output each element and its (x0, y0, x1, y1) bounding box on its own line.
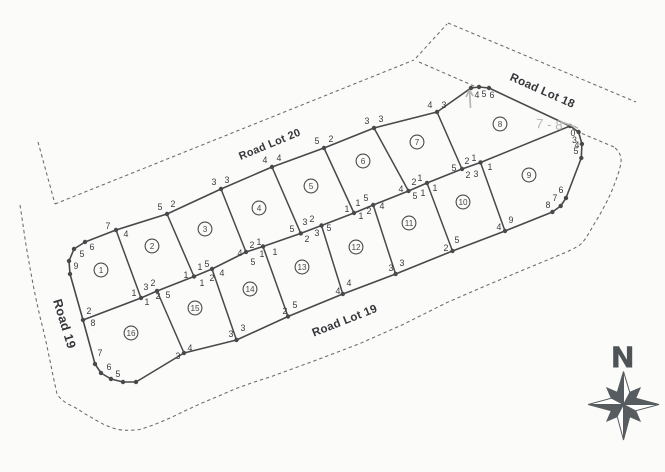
svg-text:4: 4 (336, 286, 341, 296)
svg-text:4: 4 (188, 343, 193, 353)
svg-text:2: 2 (466, 170, 471, 180)
svg-text:9: 9 (74, 261, 79, 271)
svg-text:3: 3 (225, 175, 230, 185)
svg-text:3: 3 (379, 114, 384, 124)
svg-text:13: 13 (297, 263, 307, 272)
svg-text:5: 5 (364, 193, 369, 203)
svg-text:2: 2 (444, 243, 449, 253)
svg-text:3: 3 (241, 323, 246, 333)
svg-text:3: 3 (212, 177, 217, 187)
svg-text:5: 5 (158, 202, 163, 212)
svg-text:2: 2 (305, 234, 310, 244)
svg-text:4: 4 (124, 229, 129, 239)
svg-text:4: 4 (263, 155, 268, 165)
svg-text:6: 6 (490, 90, 495, 100)
svg-text:1: 1 (198, 262, 203, 272)
svg-text:5: 5 (413, 191, 418, 201)
svg-text:5: 5 (293, 300, 298, 310)
svg-text:2: 2 (151, 278, 156, 288)
svg-text:1: 1 (356, 198, 361, 208)
svg-text:6: 6 (361, 157, 366, 166)
svg-text:12: 12 (351, 243, 361, 252)
svg-text:7: 7 (415, 138, 420, 147)
svg-text:5: 5 (166, 290, 171, 300)
svg-text:3: 3 (389, 263, 394, 273)
svg-text:9: 9 (527, 171, 532, 180)
svg-text:14: 14 (245, 285, 255, 294)
svg-text:4: 4 (277, 153, 282, 163)
svg-text:5: 5 (309, 182, 314, 191)
svg-text:2: 2 (87, 306, 92, 316)
svg-text:1: 1 (200, 278, 205, 288)
svg-text:3: 3 (315, 228, 320, 238)
svg-text:2: 2 (412, 177, 417, 187)
svg-text:5: 5 (327, 223, 332, 233)
svg-text:5: 5 (116, 369, 121, 379)
svg-text:1: 1 (99, 266, 104, 275)
svg-text:7 - 8: 7 - 8 (535, 116, 563, 133)
svg-text:1: 1 (433, 183, 438, 193)
svg-text:11: 11 (405, 219, 414, 228)
svg-text:8: 8 (91, 318, 96, 328)
svg-text:1: 1 (472, 153, 477, 163)
svg-text:4: 4 (428, 100, 433, 110)
svg-text:8: 8 (498, 120, 503, 129)
svg-text:4: 4 (257, 204, 262, 213)
svg-text:4: 4 (347, 278, 352, 288)
svg-text:5: 5 (290, 224, 295, 234)
svg-text:1: 1 (418, 173, 423, 183)
svg-text:1: 1 (260, 249, 265, 259)
svg-text:5: 5 (80, 249, 85, 259)
svg-text:4: 4 (399, 184, 404, 194)
svg-text:3: 3 (144, 282, 149, 292)
svg-text:4: 4 (497, 222, 502, 232)
svg-text:1: 1 (421, 188, 426, 198)
svg-text:1: 1 (273, 247, 278, 257)
svg-text:7: 7 (553, 193, 558, 203)
svg-text:7: 7 (98, 348, 103, 358)
svg-text:2: 2 (329, 134, 334, 144)
svg-text:1: 1 (184, 270, 189, 280)
svg-text:7: 7 (106, 221, 111, 231)
svg-text:10: 10 (458, 198, 468, 207)
svg-text:1: 1 (257, 237, 262, 247)
svg-text:3: 3 (365, 116, 370, 126)
svg-text:3: 3 (474, 169, 479, 179)
svg-text:5: 5 (455, 235, 460, 245)
svg-text:3: 3 (442, 100, 447, 110)
svg-text:4: 4 (475, 90, 480, 100)
svg-text:5: 5 (205, 259, 210, 269)
svg-text:1: 1 (132, 288, 137, 298)
svg-text:4: 4 (220, 268, 225, 278)
svg-text:6: 6 (559, 185, 564, 195)
svg-text:5: 5 (482, 89, 487, 99)
svg-text:3: 3 (303, 217, 308, 227)
svg-text:3: 3 (203, 225, 208, 234)
svg-text:1: 1 (145, 297, 150, 307)
svg-text:4: 4 (238, 248, 243, 258)
svg-text:16: 16 (126, 329, 136, 338)
svg-text:2: 2 (367, 206, 372, 216)
svg-text:2: 2 (310, 214, 315, 224)
svg-text:5: 5 (574, 146, 579, 156)
svg-text:6: 6 (90, 242, 95, 252)
svg-text:4: 4 (380, 201, 385, 211)
svg-text:15: 15 (190, 304, 200, 313)
svg-text:1: 1 (345, 204, 350, 214)
svg-text:3: 3 (176, 351, 181, 361)
svg-text:1: 1 (359, 211, 364, 221)
svg-text:2: 2 (171, 199, 176, 209)
svg-text:1: 1 (488, 162, 493, 172)
svg-text:2: 2 (465, 156, 470, 166)
svg-text:8: 8 (546, 200, 551, 210)
svg-text:2: 2 (210, 273, 215, 283)
svg-text:2: 2 (283, 306, 288, 316)
svg-text:6: 6 (107, 362, 112, 372)
svg-text:5: 5 (251, 257, 256, 267)
svg-text:2: 2 (156, 291, 161, 301)
svg-text:2: 2 (150, 242, 155, 251)
svg-text:5: 5 (452, 163, 457, 173)
svg-text:5: 5 (315, 136, 320, 146)
svg-text:3: 3 (229, 329, 234, 339)
svg-text:3: 3 (400, 258, 405, 268)
svg-text:9: 9 (509, 215, 514, 225)
svg-text:2: 2 (250, 240, 255, 250)
